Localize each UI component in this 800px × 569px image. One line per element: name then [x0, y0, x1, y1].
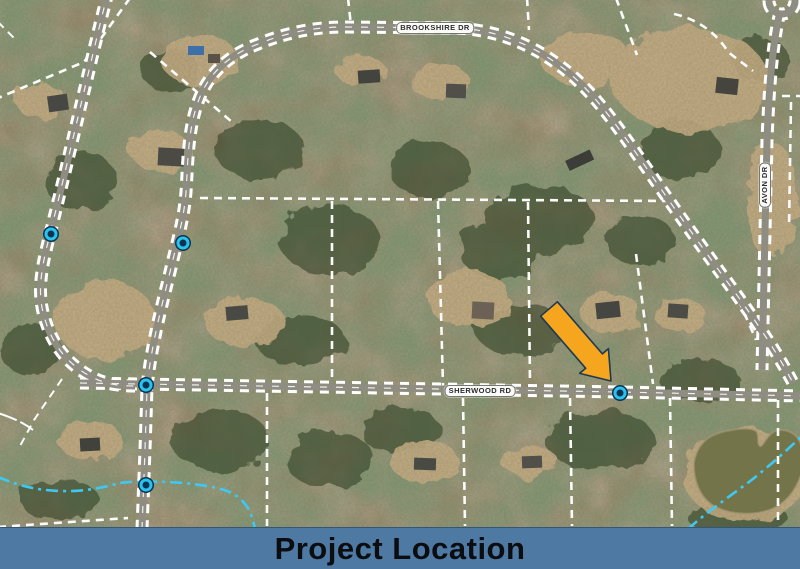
aerial-map: BROOKSHIRE DRSHERWOOD RDAVON DR — [0, 0, 800, 527]
project-location-figure: BROOKSHIRE DRSHERWOOD RDAVON DR Project … — [0, 0, 800, 569]
aerial-map-art — [0, 0, 800, 527]
title-banner: Project Location — [0, 527, 800, 569]
terrain-texture — [0, 0, 800, 527]
banner-title: Project Location — [275, 531, 526, 567]
pond — [694, 429, 800, 514]
